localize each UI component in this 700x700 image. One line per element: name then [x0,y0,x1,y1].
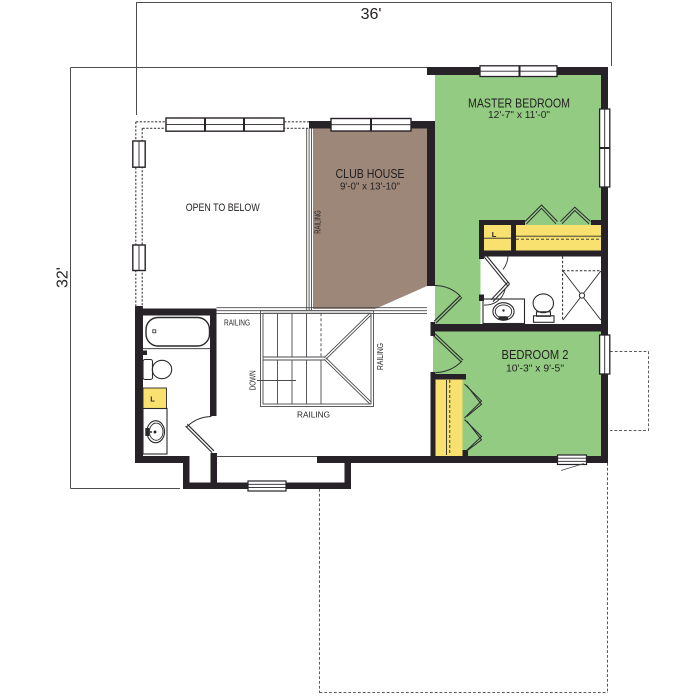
svg-text:RAILING: RAILING [224,319,250,328]
svg-text:L: L [150,395,155,404]
svg-text:RAILING: RAILING [376,343,385,370]
svg-text:OPEN TO BELOW: OPEN TO BELOW [186,202,260,214]
svg-text:RAILING: RAILING [297,411,330,420]
svg-text:32': 32' [55,267,72,288]
svg-text:BEDROOM 2: BEDROOM 2 [502,348,569,362]
svg-text:RAILING: RAILING [313,210,322,234]
svg-text:9'-0" x 13'-10": 9'-0" x 13'-10" [340,182,401,193]
svg-text:MASTER BEDROOM: MASTER BEDROOM [468,97,570,111]
svg-text:10'-3" x 9'-5": 10'-3" x 9'-5" [506,364,565,375]
svg-text:CLUB HOUSE: CLUB HOUSE [336,167,405,181]
svg-text:12'-7" x 11'-0": 12'-7" x 11'-0" [488,110,551,121]
svg-text:L: L [492,230,497,239]
svg-text:36': 36' [361,6,382,23]
svg-text:DOWN: DOWN [249,370,258,390]
